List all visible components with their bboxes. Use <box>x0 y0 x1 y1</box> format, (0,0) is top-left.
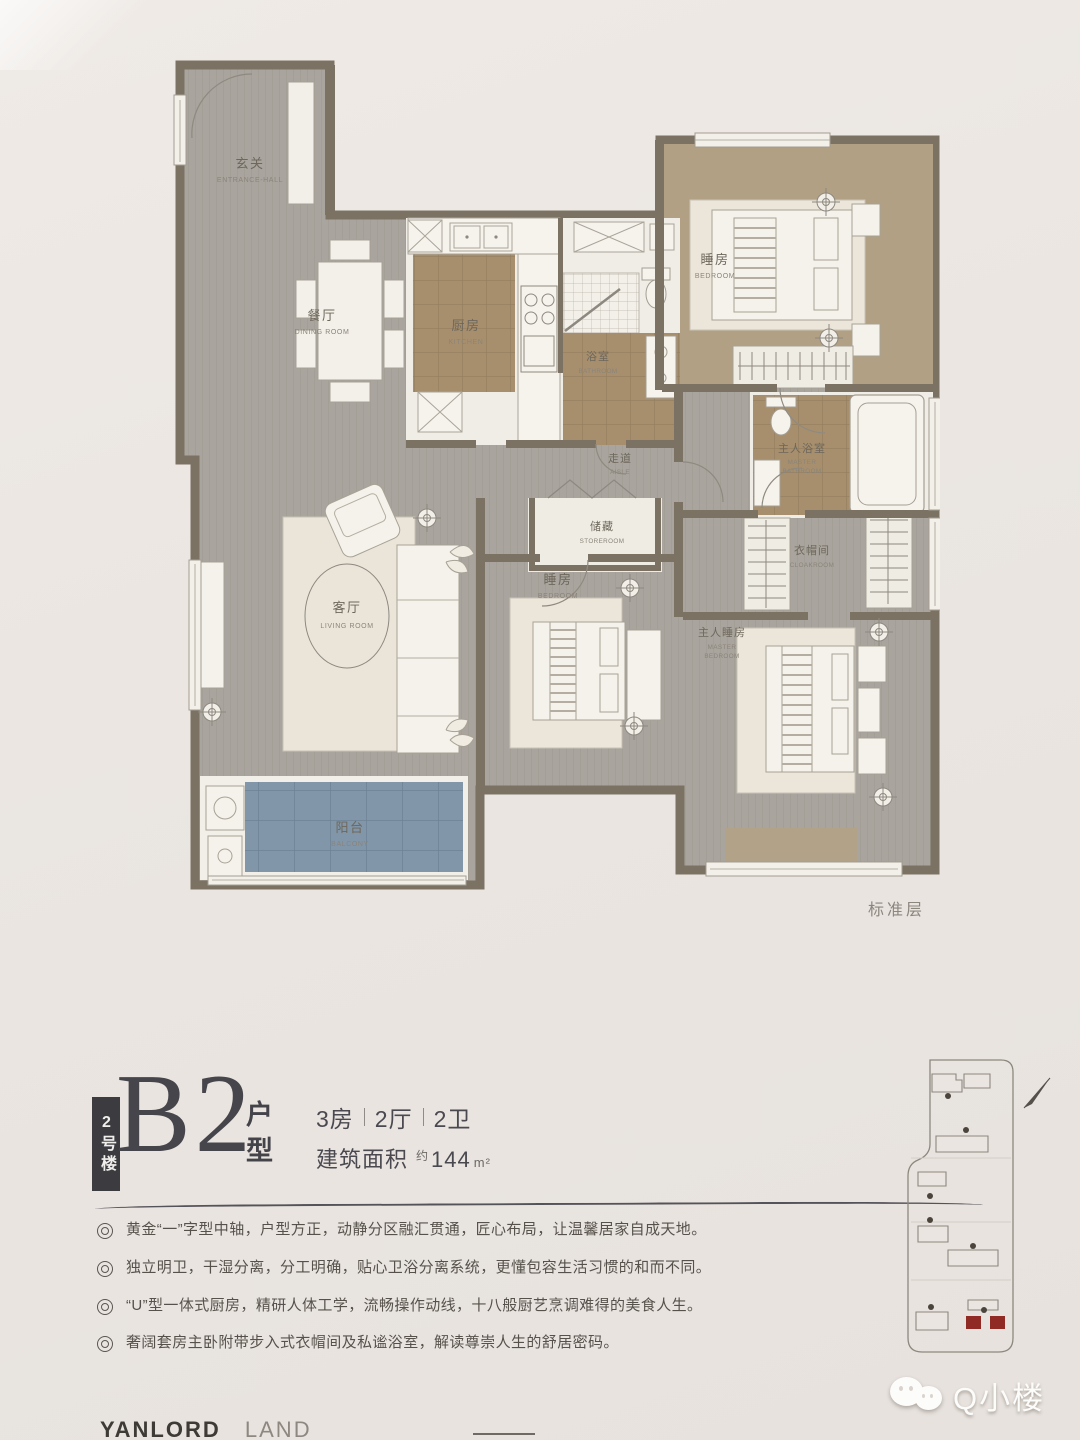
feature-text: “U”型一体式厨房，精研人体工学，流畅操作动线，十八般厨艺烹调难得的美食人生。 <box>126 1297 702 1316</box>
label-bathroom-en: BATHROOM <box>578 368 617 375</box>
bullet-ring-icon <box>97 1336 113 1352</box>
bathtub <box>850 395 924 513</box>
spec-divider <box>423 1108 424 1126</box>
site-highlighted-buildings <box>966 1316 1005 1329</box>
feature-text: 独立明卫，干湿分离，分工明确，贴心卫浴分离系统，更懂包容生活习惯的和而不同。 <box>126 1259 711 1278</box>
bullet-ring-inner <box>101 1265 109 1273</box>
master-bedroom-furniture <box>737 628 886 793</box>
label-bedroom-top-zh: 睡房 <box>700 252 729 267</box>
label-storeroom-en: STOREROOM <box>580 538 625 545</box>
wechat-eye <box>909 1386 913 1391</box>
unit-spec-row: 3房 2厅 2卫 <box>316 1100 491 1134</box>
label-entrance-en: ENTRANCE-HALL <box>217 177 283 184</box>
label-master-bedroom-en2: BEDROOM <box>704 653 739 660</box>
spec-halls: 2厅 <box>375 1100 413 1134</box>
floor-note: 标准层 <box>868 896 925 920</box>
label-cloakroom-zh: 衣帽间 <box>794 543 830 557</box>
hall-cabinet <box>288 82 314 204</box>
watermark: Q小楼 <box>890 1372 1045 1418</box>
label-balcony-zh: 阳台 <box>335 820 364 835</box>
label-bathroom-zh: 浴室 <box>586 349 610 363</box>
feature-item: 奢阔套房主卧附带步入式衣帽间及私谧浴室，解读尊崇人生的舒居密码。 <box>97 1334 817 1353</box>
area-approx: 约 <box>416 1147 429 1164</box>
north-arrow-icon <box>1024 1078 1050 1108</box>
balcony-sink <box>208 836 242 876</box>
paper-edge-highlight <box>0 0 150 70</box>
spec-baths: 2卫 <box>434 1100 472 1134</box>
unit-type-suffix: 户 型 <box>246 1098 274 1169</box>
label-aisle-zh: 走道 <box>608 451 632 465</box>
brand-secondary: LAND <box>245 1417 312 1440</box>
wechat-eye <box>922 1394 925 1398</box>
wechat-eye <box>899 1386 903 1391</box>
label-storeroom-zh: 储藏 <box>590 519 614 533</box>
wechat-eye <box>930 1394 933 1398</box>
floor-plan: 玄关 ENTRANCE-HALL 餐厅 DINING ROOM 厨房 KITCH… <box>150 40 940 920</box>
label-master-bath-en1: MASTER <box>788 459 817 466</box>
feature-text: 奢阔套房主卧附带步入式衣帽间及私谧浴室，解读尊崇人生的舒居密码。 <box>126 1334 619 1353</box>
brand-logo-line <box>473 1433 535 1435</box>
bullet-ring-inner <box>101 1227 109 1235</box>
bullet-ring-inner <box>101 1303 109 1311</box>
label-balcony-en: BALCONY <box>331 841 369 848</box>
feature-text: 黄金“一”字型中轴，户型方正，动静分区融汇贯通，匠心布局，让温馨居家自成天地。 <box>126 1221 707 1240</box>
brand-primary: YANLORD <box>100 1417 221 1440</box>
label-master-bedroom-en1: MASTER <box>708 644 737 651</box>
label-entrance-zh: 玄关 <box>235 156 264 171</box>
master-bath-door-leaf <box>754 460 780 506</box>
spec-rooms: 3房 <box>316 1100 354 1134</box>
unit-type-code: B2 <box>116 1056 255 1174</box>
label-cloakroom-en: CLOAKROOM <box>790 562 835 569</box>
watermark-label: Q小楼 <box>953 1373 1045 1418</box>
spec-divider <box>364 1108 365 1126</box>
bullet-ring-icon <box>97 1299 113 1315</box>
label-bedroom-top-en: BEDROOM <box>695 273 735 280</box>
label-bedroom-mid-zh: 睡房 <box>543 572 572 587</box>
wechat-icon <box>890 1372 944 1418</box>
label-dining-zh: 餐厅 <box>307 308 336 323</box>
photographed-floorplan-page: 玄关 ENTRANCE-HALL 餐厅 DINING ROOM 厨房 KITCH… <box>0 0 1080 1440</box>
area-label: 建筑面积 <box>316 1142 408 1174</box>
label-master-bath-zh: 主人浴室 <box>778 441 826 455</box>
feature-item: “U”型一体式厨房，精研人体工学，流畅操作动线，十八般厨艺烹调难得的美食人生。 <box>97 1297 817 1316</box>
site-key-plan <box>878 1050 1058 1370</box>
wechat-bubble-small <box>915 1386 942 1410</box>
washer <box>206 786 244 830</box>
bullet-ring-icon <box>97 1223 113 1239</box>
feature-item: 独立明卫，干湿分离，分工明确，贴心卫浴分离系统，更懂包容生活习惯的和而不同。 <box>97 1259 817 1278</box>
brand-logo: YANLORD LAND <box>100 1417 312 1440</box>
label-kitchen-zh: 厨房 <box>451 318 480 333</box>
label-dining-en: DINING ROOM <box>295 329 350 336</box>
feature-item: 黄金“一”字型中轴，户型方正，动静分区融汇贯通，匠心布局，让温馨居家自成天地。 <box>97 1221 817 1240</box>
feature-list: 黄金“一”字型中轴，户型方正，动静分区融汇贯通，匠心布局，让温馨居家自成天地。 … <box>97 1221 817 1372</box>
bullet-ring-icon <box>97 1261 113 1277</box>
unit-area-row: 建筑面积 约 144 m² <box>316 1142 491 1174</box>
label-master-bath-en2: BATHROOM <box>782 468 821 475</box>
site-buildings <box>916 1074 998 1330</box>
unit-specs: 3房 2厅 2卫 建筑面积 约 144 m² <box>316 1100 491 1174</box>
bullet-ring-inner <box>101 1340 109 1348</box>
area-value: 144 <box>431 1147 471 1173</box>
label-living-zh: 客厅 <box>332 600 361 615</box>
label-bedroom-mid-en: BEDROOM <box>538 593 578 600</box>
unit-type-suffix-line2: 型 <box>246 1134 274 1170</box>
label-aisle-en: AISLE <box>610 469 630 476</box>
label-master-bedroom-zh: 主人睡房 <box>698 626 746 639</box>
label-living-en: LIVING ROOM <box>320 623 373 630</box>
divider-rule <box>95 1201 983 1213</box>
label-kitchen-en: KITCHEN <box>449 339 484 346</box>
unit-type-suffix-line1: 户 <box>246 1098 274 1134</box>
area-unit: m² <box>474 1155 491 1170</box>
